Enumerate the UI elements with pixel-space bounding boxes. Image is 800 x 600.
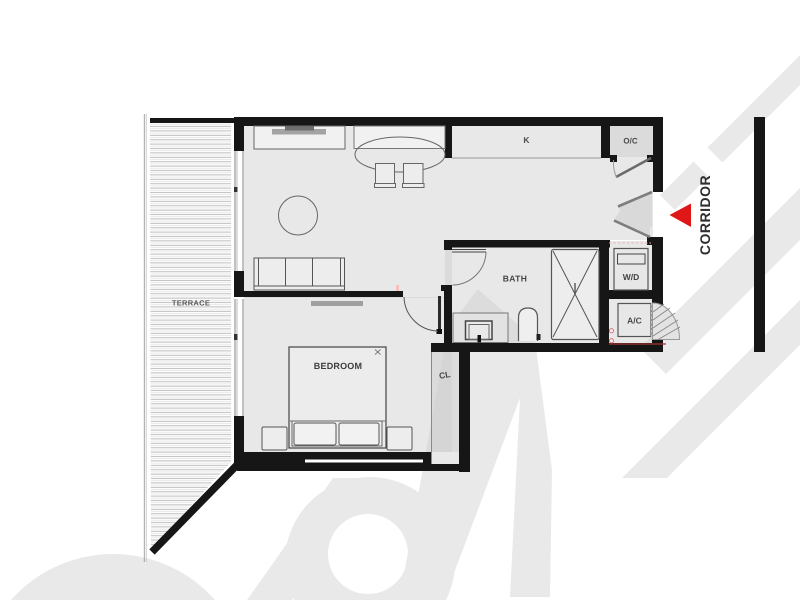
svg-text:TERRACE: TERRACE	[172, 299, 210, 308]
svg-text:CL: CL	[438, 369, 451, 381]
svg-text:K: K	[523, 135, 530, 145]
svg-text:O/C: O/C	[623, 137, 637, 146]
svg-text:W/D: W/D	[623, 272, 640, 282]
svg-text:BEDROOM: BEDROOM	[314, 361, 362, 371]
svg-text:BATH: BATH	[503, 274, 528, 284]
svg-text:CORRIDOR: CORRIDOR	[697, 175, 713, 255]
svg-text:A/C: A/C	[627, 316, 642, 326]
